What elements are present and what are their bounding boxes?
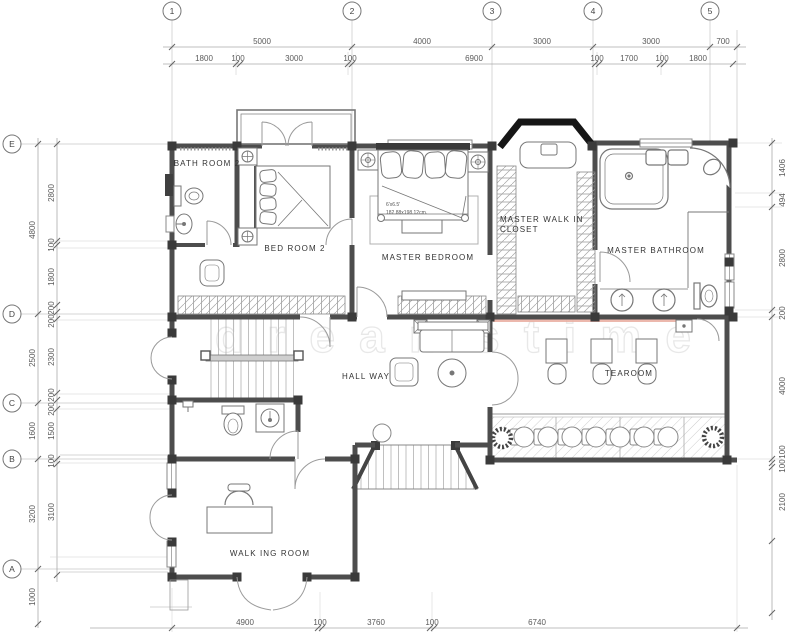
wall-post <box>168 396 177 405</box>
balcony <box>237 110 355 144</box>
bedroom2-wardrobe <box>178 296 345 314</box>
wall-post <box>588 142 597 151</box>
dim-left-inner-4: 200 <box>47 314 56 328</box>
floor-plan-canvas: dreamstime <box>0 0 800 634</box>
bench <box>402 220 442 233</box>
dim-left-inner-9: 100 <box>47 454 56 468</box>
tearoom-table <box>546 339 567 363</box>
closet-rack-right <box>577 172 595 312</box>
grid-column-2: 2 <box>350 6 355 16</box>
dim-top-row2-1: 100 <box>231 54 245 63</box>
dim-top-row2-6: 1700 <box>620 54 638 63</box>
room-label-hall-way: HALL WAY <box>342 372 390 381</box>
room-label-master-walk-in-closet-line2: CLOSET <box>500 225 539 234</box>
grid-column-4: 4 <box>591 6 596 16</box>
dim-right-4: 4000 <box>778 377 787 395</box>
dim-top-row2-7: 100 <box>655 54 669 63</box>
dim-left-outer-3: 3200 <box>28 505 37 523</box>
dim-top-row1-0: 5000 <box>253 37 271 46</box>
dim-top-row1-2: 3000 <box>533 37 551 46</box>
wall-post <box>723 456 732 465</box>
room-label-master-bedroom: MASTER BEDROOM <box>382 253 474 262</box>
terrace-table <box>610 427 630 447</box>
dim-left-inner-8: 1500 <box>47 422 56 440</box>
dim-right-7: 2100 <box>778 493 787 511</box>
grid-row-D: D <box>9 309 15 319</box>
wall-post <box>729 139 738 148</box>
wall-post <box>488 142 497 151</box>
room-label-master-bathroom: MASTER BATHROOM <box>607 246 705 255</box>
dim-bottom-0: 4900 <box>236 618 254 627</box>
dim-left-outer-0: 4800 <box>28 221 37 239</box>
wall-post <box>168 313 177 322</box>
dim-right-3: 200 <box>778 306 787 320</box>
terrace <box>490 414 727 459</box>
tearoom-right-door <box>697 319 719 341</box>
walking-room-furniture <box>207 484 272 533</box>
toilet-icon <box>174 186 181 206</box>
dim-top-row1-1: 4000 <box>413 37 431 46</box>
sofa-back <box>418 322 488 330</box>
dim-top-row2-3: 100 <box>343 54 357 63</box>
wall-post <box>486 456 495 465</box>
dim-right-0: 1406 <box>778 159 787 177</box>
dim-left-inner-0: 2800 <box>47 184 56 202</box>
desk-icon <box>207 507 272 533</box>
toilet-icon <box>694 283 700 309</box>
wall-post <box>168 538 177 547</box>
dim-left-inner-2: 1800 <box>47 268 56 286</box>
dim-bottom-4: 6740 <box>528 618 546 627</box>
grid-row-A: A <box>9 564 15 574</box>
terrace-table <box>586 427 606 447</box>
room-label-bed-room-2: BED ROOM 2 <box>264 244 325 253</box>
dim-top-row1-4: 700 <box>716 37 730 46</box>
grid-column-5: 5 <box>708 6 713 16</box>
sink-icon <box>668 150 688 165</box>
staircase <box>201 318 303 398</box>
closet-rack-left <box>497 166 516 314</box>
dim-left-outer-1: 2500 <box>28 349 37 367</box>
dim-top-row2-2: 3000 <box>285 54 303 63</box>
dresser <box>402 291 466 300</box>
closet-vanity <box>520 142 576 168</box>
wall-post <box>294 396 303 405</box>
dim-left-inner-10: 3100 <box>47 503 56 521</box>
bed-size-metric-annotation: 182.88x198.12cm. <box>386 210 427 216</box>
terrace-table <box>634 427 654 447</box>
sink-icon <box>646 150 666 165</box>
wall-post <box>725 307 734 316</box>
dim-left-outer-2: 1600 <box>28 422 37 440</box>
tearoom-table <box>636 339 657 363</box>
walking-room-bottom-double-door <box>237 577 307 610</box>
bedroom2-furniture <box>200 148 330 286</box>
dim-top-row2-8: 1800 <box>689 54 707 63</box>
room-label-master-walk-in-closet-line1: MASTER WALK IN <box>500 215 584 224</box>
bathroom3-fixtures <box>183 401 284 435</box>
bay-window <box>353 424 477 489</box>
closet-mat <box>518 296 575 312</box>
bathroom2-fixtures <box>174 186 203 234</box>
master-bathroom-door <box>600 252 630 282</box>
wall-post <box>348 142 357 151</box>
wall-post <box>168 489 177 498</box>
balcony-french-doors <box>262 122 312 146</box>
wall-post <box>351 573 360 582</box>
dim-left-inner-3: 200 <box>47 301 56 315</box>
plant-icon <box>704 428 722 446</box>
grid-row-C: C <box>9 398 15 408</box>
tearoom-table <box>591 339 612 363</box>
terrace-table <box>538 427 558 447</box>
room-label-tearoom: TEAROOM <box>605 369 653 378</box>
chair-icon <box>225 491 253 505</box>
grid-bubbles <box>3 2 719 578</box>
dim-right-6: 100 <box>778 459 787 473</box>
bathroom3-door <box>270 431 298 459</box>
wall-post <box>348 313 357 322</box>
dim-bottom-3: 100 <box>425 618 439 627</box>
wall-post <box>168 142 177 151</box>
hall-left-double-door <box>151 337 172 379</box>
walking-room-left-double-door <box>150 495 172 540</box>
headboard <box>376 143 470 150</box>
bathroom2-door <box>207 221 231 245</box>
grid-row-B: B <box>9 454 15 464</box>
dim-left-inner-1: 100 <box>47 238 56 252</box>
grid-row-E: E <box>9 139 15 149</box>
bed-size-annotation: 6'x6.5' <box>386 202 400 208</box>
wall-post <box>725 258 734 267</box>
dim-top-row2-4: 6900 <box>465 54 483 63</box>
wall-vent <box>165 174 173 196</box>
wall-post <box>351 455 360 464</box>
tearoom-chair <box>548 364 566 384</box>
dim-left-inner-7: 200 <box>47 402 56 416</box>
dim-top-row2-5: 100 <box>590 54 604 63</box>
floor-plan-svg: dreamstime <box>0 0 800 634</box>
dim-right-5: 100 <box>778 445 787 459</box>
dim-top-row1-3: 3000 <box>642 37 660 46</box>
wall-post <box>168 376 177 385</box>
terrace-table <box>658 427 678 447</box>
dim-right-1: 494 <box>778 193 787 207</box>
walking-room-door <box>295 459 325 489</box>
grid-column-1: 1 <box>170 6 175 16</box>
grid-column-3: 3 <box>490 6 495 16</box>
room-label-bath-room-2: BATH ROOM 2 <box>174 159 241 168</box>
dim-left-inner-6: 200 <box>47 388 56 402</box>
room-label-walking-room: WALK ING ROOM <box>230 549 310 558</box>
terrace-table <box>514 427 534 447</box>
dim-right-2: 2800 <box>778 249 787 267</box>
wall-post <box>591 313 600 322</box>
dim-top-row2-0: 1800 <box>195 54 213 63</box>
planter-icon <box>373 424 391 442</box>
dim-bottom-1: 100 <box>313 618 327 627</box>
wall-post <box>168 241 177 250</box>
master-bathroom-fixtures <box>600 148 730 311</box>
wall-post <box>168 455 177 464</box>
dim-left-inner-5: 2300 <box>47 348 56 366</box>
dim-bottom-2: 3760 <box>367 618 385 627</box>
wall-post <box>168 329 177 338</box>
terrace-table <box>562 427 582 447</box>
plant-icon <box>493 429 511 447</box>
tap-icon <box>183 401 193 407</box>
dimension-ticks <box>35 44 775 631</box>
master-bedroom-furniture <box>358 143 488 300</box>
dim-left-outer-4: 1000 <box>28 588 37 606</box>
